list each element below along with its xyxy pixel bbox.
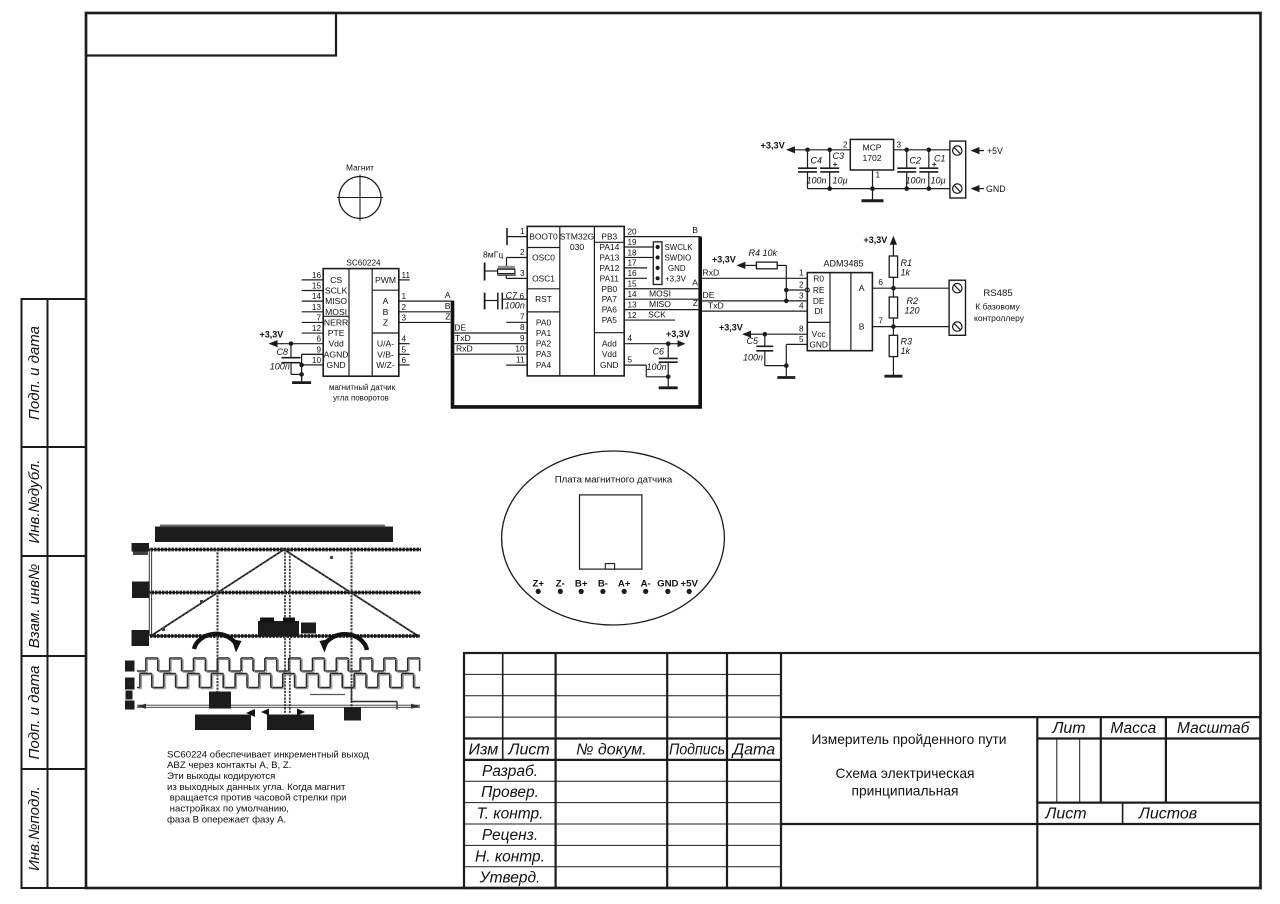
svg-text:15: 15 [628, 280, 638, 289]
svg-text:Взам. инв№: Взам. инв№ [26, 564, 43, 648]
svg-text:A: A [445, 290, 451, 300]
svg-text:3: 3 [402, 313, 407, 322]
svg-text:Дата: Дата [731, 742, 775, 759]
svg-text:13: 13 [312, 303, 322, 312]
svg-text:6: 6 [316, 335, 321, 344]
svg-text:Утверд.: Утверд. [479, 870, 541, 887]
svg-text:U/A-: U/A- [377, 339, 394, 349]
svg-text:14: 14 [312, 292, 322, 301]
svg-text:14: 14 [628, 290, 638, 299]
svg-text:Провер.: Провер. [481, 784, 539, 801]
svg-text:DI: DI [814, 306, 822, 316]
svg-text:TxD: TxD [708, 300, 724, 310]
svg-text:Плата магнитного датчика: Плата магнитного датчика [555, 475, 673, 486]
svg-text:1k: 1k [901, 268, 911, 278]
svg-text:№ докум.: № докум. [576, 742, 646, 759]
svg-text:B: B [383, 307, 389, 317]
svg-text:20: 20 [628, 227, 638, 236]
svg-text:Подпись: Подпись [669, 742, 725, 759]
svg-text:ABZ через контакты A, B, Z.: ABZ через контакты A, B, Z. [167, 760, 291, 771]
svg-text:RxD: RxD [456, 344, 473, 354]
svg-text:Лист: Лист [1044, 806, 1086, 823]
svg-text:1: 1 [402, 292, 407, 301]
svg-text:9: 9 [316, 345, 321, 354]
svg-text:GND: GND [986, 184, 1006, 194]
svg-text:Масштаб: Масштаб [1177, 720, 1251, 737]
svg-text:10µ: 10µ [833, 175, 848, 185]
svg-text:GND: GND [668, 264, 686, 273]
svg-text:PA0: PA0 [536, 317, 552, 327]
svg-text:1702: 1702 [862, 153, 881, 163]
svg-text:+3,3V: +3,3V [864, 235, 888, 245]
svg-text:PB0: PB0 [601, 284, 617, 294]
svg-text:PA4: PA4 [536, 360, 552, 370]
svg-text:OSC1: OSC1 [532, 273, 555, 283]
svg-text:2: 2 [799, 280, 804, 289]
svg-text:R2: R2 [907, 296, 919, 306]
svg-text:16: 16 [312, 271, 322, 280]
svg-text:К базовому: К базовому [975, 301, 1020, 311]
svg-text:Лист: Лист [508, 742, 550, 759]
svg-text:контроллеру: контроллеру [974, 313, 1025, 323]
svg-text:18: 18 [628, 248, 638, 257]
svg-text:12: 12 [628, 311, 638, 320]
svg-text:W/Z-: W/Z- [376, 360, 395, 370]
svg-text:RS485: RS485 [983, 288, 1012, 299]
svg-text:10: 10 [312, 356, 322, 365]
svg-text:PB3: PB3 [601, 232, 617, 242]
svg-text:5: 5 [799, 335, 804, 344]
svg-text:CS: CS [330, 275, 342, 285]
svg-text:3: 3 [799, 291, 804, 300]
svg-text:PA7: PA7 [602, 294, 618, 304]
svg-text:GND: GND [327, 360, 346, 370]
svg-text:+: + [833, 160, 838, 169]
svg-text:фаза B опережает фазу A.: фаза B опережает фазу A. [167, 814, 286, 825]
svg-text:+5V: +5V [681, 579, 699, 590]
svg-text:DE: DE [813, 296, 825, 306]
svg-text:11: 11 [516, 356, 525, 365]
svg-text:6: 6 [878, 278, 883, 287]
svg-text:100n: 100n [807, 175, 827, 185]
svg-text:Vcc: Vcc [812, 329, 826, 339]
svg-text:MOSI: MOSI [649, 289, 671, 299]
svg-text:11: 11 [402, 271, 411, 280]
svg-text:C4: C4 [811, 156, 823, 166]
svg-text:магнитный датчик: магнитный датчик [329, 383, 396, 392]
svg-text:A: A [383, 296, 389, 306]
svg-text:SCLK: SCLK [325, 286, 348, 296]
svg-text:5: 5 [628, 356, 633, 365]
svg-text:100n: 100n [906, 175, 926, 185]
svg-text:Z+: Z+ [532, 579, 544, 590]
svg-text:STM32G: STM32G [560, 232, 595, 242]
svg-text:C8: C8 [277, 347, 289, 357]
svg-text:PA14: PA14 [599, 242, 619, 252]
svg-text:7: 7 [878, 316, 883, 325]
svg-text:DE: DE [454, 322, 466, 332]
svg-text:10: 10 [515, 345, 525, 354]
svg-text:15: 15 [312, 282, 322, 291]
svg-text:+3,3V: +3,3V [761, 140, 786, 150]
svg-text:+5V: +5V [987, 146, 1003, 156]
svg-text:Масса: Масса [1110, 720, 1156, 737]
svg-text:Инв.№дубл.: Инв.№дубл. [26, 460, 43, 544]
svg-text:GND: GND [657, 579, 678, 590]
svg-text:C7: C7 [506, 290, 518, 300]
svg-text:SWCLK: SWCLK [665, 243, 694, 252]
svg-text:R3: R3 [901, 336, 913, 346]
svg-text:10µ: 10µ [931, 175, 946, 185]
svg-text:R0: R0 [813, 273, 824, 283]
svg-text:100n: 100n [270, 361, 290, 371]
svg-text:5: 5 [402, 345, 407, 354]
svg-text:GND: GND [809, 339, 828, 349]
svg-text:MISO: MISO [649, 299, 671, 309]
svg-text:Н. контр.: Н. контр. [475, 848, 545, 865]
svg-text:Магнит: Магнит [346, 163, 374, 173]
svg-text:Add: Add [602, 339, 617, 349]
svg-text:B: B [692, 225, 698, 235]
svg-text:B: B [859, 322, 865, 332]
svg-text:Измеритель пройденного пути: Измеритель пройденного пути [811, 732, 1006, 747]
svg-text:3: 3 [897, 140, 902, 149]
svg-text:Реценз.: Реценз. [482, 827, 538, 844]
svg-text:C6: C6 [653, 346, 665, 356]
svg-text:PA5: PA5 [602, 315, 618, 325]
svg-text:R4 10k: R4 10k [749, 248, 778, 258]
svg-text:PWM: PWM [375, 275, 396, 285]
svg-text:C5: C5 [747, 336, 759, 346]
svg-text:12: 12 [312, 324, 322, 333]
svg-text:MISO: MISO [325, 296, 347, 306]
svg-text:PA12: PA12 [599, 263, 619, 273]
svg-text:2: 2 [402, 303, 407, 312]
svg-text:Подп. и дата: Подп. и дата [26, 326, 43, 420]
svg-text:030: 030 [570, 242, 585, 252]
svg-text:V/B-: V/B- [377, 349, 394, 359]
svg-text:A: A [859, 283, 865, 293]
svg-text:SWDIO: SWDIO [665, 253, 692, 262]
svg-text:Vdd: Vdd [328, 339, 344, 349]
svg-text:B: B [445, 301, 451, 311]
svg-text:Разраб.: Разраб. [482, 763, 538, 780]
svg-text:MCP: MCP [862, 143, 881, 153]
svg-text:PA3: PA3 [536, 349, 552, 359]
svg-text:2: 2 [520, 248, 525, 257]
svg-text:угла поворотов: угла поворотов [333, 393, 389, 402]
svg-text:PA13: PA13 [599, 252, 619, 262]
svg-text:1: 1 [520, 227, 525, 236]
svg-text:6: 6 [402, 356, 407, 365]
svg-text:Эти выходы кодируются: Эти выходы кодируются [167, 771, 275, 782]
svg-text:PA1: PA1 [536, 328, 552, 338]
svg-text:настройках по умолчанию,: настройках по умолчанию, [167, 804, 289, 815]
svg-text:+3,3V: +3,3V [260, 330, 284, 340]
svg-text:4: 4 [628, 334, 633, 343]
svg-text:100n: 100n [743, 353, 763, 363]
svg-text:BOOT0: BOOT0 [529, 232, 558, 242]
svg-text:7: 7 [520, 312, 525, 321]
svg-text:7: 7 [316, 313, 321, 322]
svg-text:C2: C2 [910, 156, 922, 166]
svg-text:Изм: Изм [469, 742, 499, 759]
svg-text:RxD: RxD [703, 268, 720, 278]
svg-text:OSC0: OSC0 [532, 253, 555, 263]
svg-text:RST: RST [535, 294, 552, 304]
svg-text:16: 16 [628, 269, 638, 278]
svg-text:A-: A- [641, 579, 651, 590]
svg-text:AGND: AGND [324, 349, 349, 359]
svg-text:3: 3 [520, 269, 525, 278]
svg-text:8: 8 [520, 323, 525, 332]
svg-text:4: 4 [402, 335, 407, 344]
svg-text:+3,3V: +3,3V [712, 254, 736, 264]
svg-text:B-: B- [598, 579, 608, 590]
svg-text:GND: GND [600, 360, 619, 370]
svg-text:2: 2 [843, 140, 848, 149]
svg-text:8мГц: 8мГц [483, 250, 503, 260]
svg-text:+3,3V: +3,3V [719, 322, 743, 332]
svg-text:+3,3V: +3,3V [665, 274, 687, 283]
svg-text:100n: 100n [505, 300, 525, 310]
svg-text:TxD: TxD [455, 333, 471, 343]
svg-text:+: + [932, 160, 937, 169]
svg-text:Схема электрическая: Схема электрическая [836, 766, 975, 781]
svg-text:NERR: NERR [324, 317, 348, 327]
svg-text:Лит: Лит [1051, 720, 1085, 737]
svg-text:RE: RE [813, 285, 825, 295]
svg-text:9: 9 [520, 334, 525, 343]
svg-text:4: 4 [799, 302, 804, 311]
svg-text:Vdd: Vdd [602, 349, 617, 359]
svg-text:PA11: PA11 [600, 273, 620, 283]
svg-text:R1: R1 [901, 258, 913, 268]
svg-text:Подп. и дата: Подп. и дата [26, 666, 43, 760]
svg-text:принципиальная: принципиальная [852, 784, 959, 799]
svg-text:100n: 100n [647, 362, 667, 372]
svg-text:SC60224 обеспечивает инкремент: SC60224 обеспечивает инкрементный выход [167, 749, 369, 760]
svg-text:SC60224: SC60224 [346, 258, 381, 267]
svg-text:Z-: Z- [556, 579, 565, 590]
svg-text:A: A [692, 277, 698, 287]
svg-text:1: 1 [799, 269, 804, 278]
svg-text:A+: A+ [618, 579, 631, 590]
svg-text:из выходных данных угла. Когда: из выходных данных угла. Когда магнит [167, 782, 346, 793]
svg-text:PA2: PA2 [536, 339, 552, 349]
svg-text:MOSI: MOSI [325, 307, 347, 317]
svg-text:вращается против часовой стрел: вращается против часовой стрелки при [167, 793, 347, 804]
svg-text:Т. контр.: Т. контр. [477, 806, 544, 823]
svg-text:1k: 1k [901, 346, 911, 356]
svg-text:DE: DE [703, 290, 715, 300]
svg-text:ADM3485: ADM3485 [823, 259, 863, 269]
svg-text:Z: Z [383, 317, 388, 327]
svg-text:1: 1 [876, 170, 881, 179]
svg-text:Z: Z [445, 311, 450, 321]
svg-text:Листов: Листов [1138, 806, 1197, 823]
svg-text:PTE: PTE [328, 328, 345, 338]
svg-text:Инв.№подл.: Инв.№подл. [26, 786, 43, 871]
svg-text:B+: B+ [575, 579, 588, 590]
svg-text:Z: Z [693, 298, 698, 308]
svg-text:SCK: SCK [648, 309, 666, 319]
svg-text:PA6: PA6 [602, 305, 618, 315]
svg-text:120: 120 [905, 305, 920, 315]
svg-text:+3,3V: +3,3V [666, 329, 690, 339]
svg-text:17: 17 [628, 259, 638, 268]
svg-text:8: 8 [799, 325, 804, 334]
svg-text:13: 13 [628, 300, 638, 309]
svg-text:19: 19 [628, 238, 638, 247]
